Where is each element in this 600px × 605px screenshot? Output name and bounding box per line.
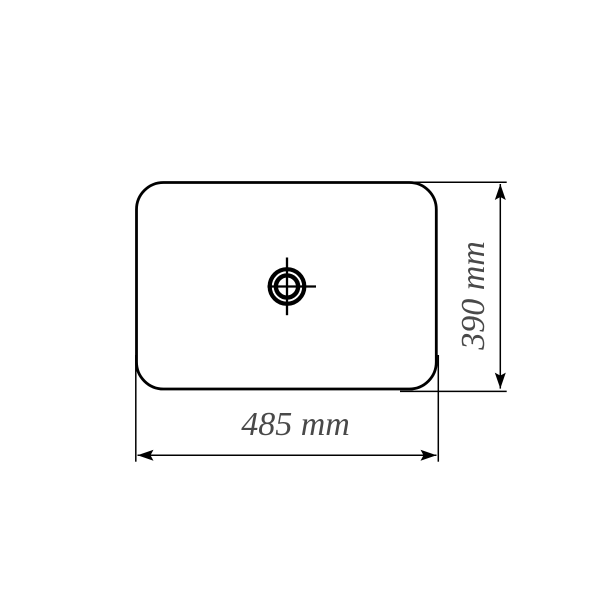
svg-text:485 mm: 485 mm [241, 406, 350, 443]
svg-text:390 mm: 390 mm [455, 241, 492, 351]
